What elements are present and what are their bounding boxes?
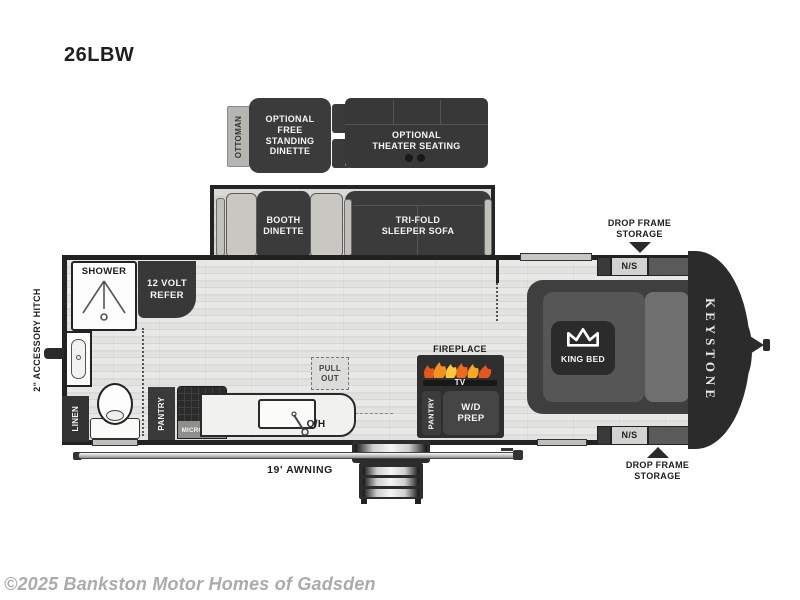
dinette-armrest	[216, 198, 225, 256]
tri-fold-sleeper-sofa: TRI-FOLD SLEEPER SOFA	[345, 191, 491, 260]
linen-cabinet: LINEN	[62, 396, 89, 442]
kitchen-pantry: PANTRY	[148, 387, 175, 440]
booth-dinette-table: BOOTH DINETTE	[257, 191, 310, 260]
awning-endcap-right	[513, 450, 523, 460]
tv: TV	[443, 376, 477, 389]
cupholder-icon	[405, 154, 413, 162]
page-title: 26LBW	[64, 44, 154, 68]
kitchen-counter: O/H	[200, 393, 356, 437]
ottoman: OTTOMAN	[227, 106, 250, 167]
sofa-armrest-left	[344, 199, 352, 256]
pull-out-counter: PULL OUT	[311, 357, 349, 390]
vanity-sink	[65, 331, 92, 387]
slideout-room: BOOTH DINETTE TRI-FOLD SLEEPER SOFA	[210, 185, 495, 265]
optional-theater-seating: OPTIONAL THEATER SEATING	[345, 98, 488, 168]
awning-label: 19' AWNING	[248, 464, 352, 476]
cupholder-icon	[417, 154, 425, 162]
king-bed: KING BED	[527, 280, 695, 414]
brand-label: KEYSTONE	[702, 298, 718, 402]
media-pantry: PANTRY	[422, 391, 441, 435]
hitch-coupler	[763, 339, 770, 351]
shower-spray-icon	[73, 279, 135, 327]
wd-prep: W/D PREP	[443, 391, 499, 435]
ottoman-label: OTTOMAN	[234, 116, 243, 158]
entry-steps	[352, 440, 430, 504]
drop-frame-storage-top-label: DROP FRAME STORAGE	[592, 218, 687, 239]
refrigerator: 12 VOLT REFER	[138, 261, 196, 318]
window-segment	[92, 439, 138, 446]
bedroom-door	[496, 283, 498, 321]
sofa-armrest-right	[484, 199, 492, 256]
pocket-door	[142, 328, 144, 436]
fireplace-label: FIREPLACE	[415, 344, 505, 355]
drop-frame-storage-bottom-label: DROP FRAME STORAGE	[610, 460, 705, 481]
king-bed-badge: KING BED	[551, 321, 615, 375]
arrow-up-icon	[647, 447, 669, 458]
top-cabinet-strip: N/S	[597, 257, 695, 276]
entertainment-unit: TV PANTRY W/D PREP	[417, 355, 504, 438]
window-segment	[537, 439, 587, 446]
awning-bar	[78, 452, 518, 459]
dinette-bench-left	[226, 193, 257, 258]
crown-icon	[563, 326, 603, 350]
bedroom-wall-stub	[496, 257, 499, 283]
shower: SHOWER	[71, 261, 137, 331]
window-segment	[520, 253, 592, 261]
rear-hitch-stub	[44, 348, 64, 359]
shower-label: SHOWER	[73, 266, 135, 277]
toilet	[97, 383, 133, 425]
optional-free-standing-dinette: OPTIONAL FREE STANDING DINETTE	[249, 98, 331, 173]
watermark: ©2025 Bankston Motor Homes of Gadsden	[4, 574, 504, 595]
nightstand-top: N/S	[611, 257, 648, 276]
overhead-label: O/H	[298, 419, 334, 431]
nightstand-bottom: N/S	[611, 426, 648, 445]
awning-bracket	[501, 448, 513, 451]
accessory-hitch-label: 2" ACCESSORY HITCH	[32, 288, 43, 391]
arrow-down-icon	[629, 242, 651, 253]
theater-seating-label: OPTIONAL THEATER SEATING	[372, 130, 460, 151]
bottom-cabinet-strip: N/S	[597, 426, 695, 445]
hitch-cone	[742, 331, 764, 359]
dinette-bench-right	[310, 193, 343, 258]
floorplan-canvas: 26LBW OTTOMAN OPTIONAL FREE STANDING DIN…	[0, 0, 800, 600]
